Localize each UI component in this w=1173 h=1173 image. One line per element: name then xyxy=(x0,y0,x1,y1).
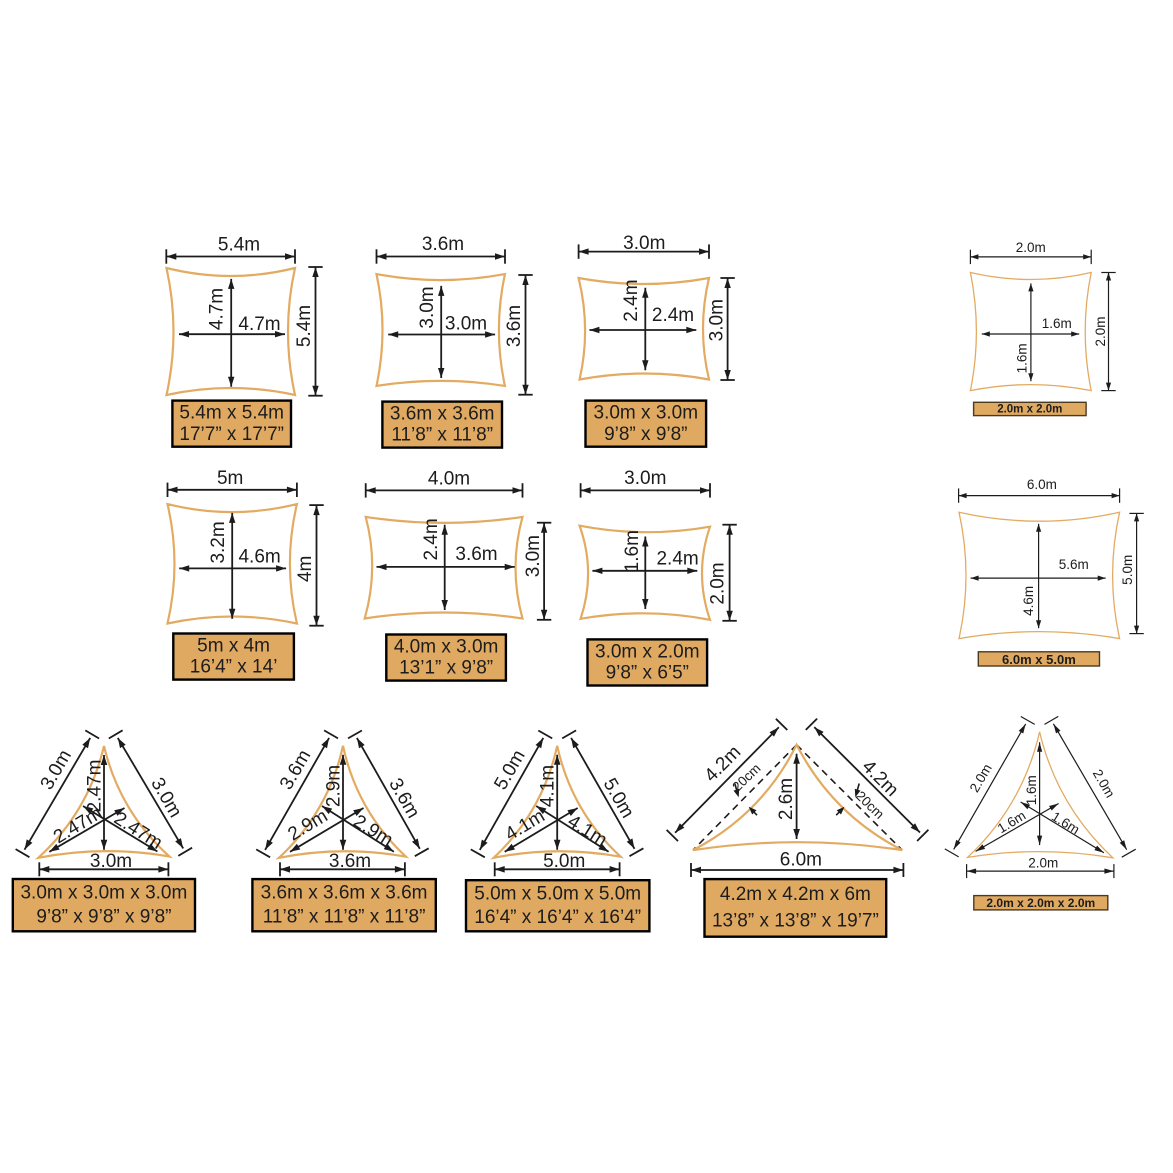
svg-text:3.0m x 2.0m: 3.0m x 2.0m xyxy=(595,641,700,662)
svg-text:3.0m: 3.0m xyxy=(417,286,438,328)
svg-text:3.0m: 3.0m xyxy=(445,314,487,335)
svg-text:5.6m: 5.6m xyxy=(1059,557,1089,572)
svg-text:2.0m: 2.0m xyxy=(707,562,728,604)
svg-text:2.0m: 2.0m xyxy=(1016,240,1046,255)
svg-text:2.0m x 2.0m: 2.0m x 2.0m xyxy=(997,403,1062,415)
svg-text:5.0m: 5.0m xyxy=(543,851,585,872)
svg-text:17’7” x 17’7”: 17’7” x 17’7” xyxy=(179,424,284,445)
svg-text:3.0m x 3.0m: 3.0m x 3.0m xyxy=(594,403,699,424)
svg-text:2.4m: 2.4m xyxy=(656,549,698,570)
svg-text:11’8” x 11’8” x 11’8”: 11’8” x 11’8” x 11’8” xyxy=(263,907,426,928)
svg-text:2.4m: 2.4m xyxy=(621,279,642,321)
svg-text:2.0m: 2.0m xyxy=(1028,855,1058,870)
svg-text:2.6m: 2.6m xyxy=(776,778,797,820)
svg-text:13’1” x 9’8”: 13’1” x 9’8” xyxy=(399,658,493,679)
svg-text:4.7m: 4.7m xyxy=(238,314,280,335)
svg-text:4.7m: 4.7m xyxy=(207,288,228,330)
svg-text:11’8” x 11’8”: 11’8” x 11’8” xyxy=(391,425,493,446)
svg-text:4.6m: 4.6m xyxy=(238,547,280,568)
svg-text:3.6m: 3.6m xyxy=(422,234,464,255)
svg-text:2.0m x 2.0m x 2.0m: 2.0m x 2.0m x 2.0m xyxy=(986,896,1095,910)
svg-text:3.0m: 3.0m xyxy=(623,233,665,254)
svg-text:5.4m: 5.4m xyxy=(294,305,315,347)
svg-text:1.6m: 1.6m xyxy=(1015,343,1030,373)
svg-text:5.0m: 5.0m xyxy=(1120,555,1135,585)
svg-text:9’8” x 9’8” x 9’8”: 9’8” x 9’8” x 9’8” xyxy=(36,907,171,928)
svg-text:4.0m: 4.0m xyxy=(428,468,470,489)
svg-text:3.6m: 3.6m xyxy=(329,851,371,872)
svg-text:4.1m: 4.1m xyxy=(538,765,559,807)
svg-text:5.0m x 5.0m x 5.0m: 5.0m x 5.0m x 5.0m xyxy=(474,884,641,905)
svg-text:5m x 4m: 5m x 4m xyxy=(197,635,270,656)
svg-text:4m: 4m xyxy=(295,556,316,582)
svg-text:3.6m: 3.6m xyxy=(504,305,525,347)
svg-text:6.0m x 5.0m: 6.0m x 5.0m xyxy=(1002,652,1076,667)
svg-text:6.0m: 6.0m xyxy=(780,850,822,871)
svg-text:4.6m: 4.6m xyxy=(1021,586,1036,616)
svg-text:3.0m: 3.0m xyxy=(523,535,544,577)
svg-text:4.0m x 3.0m: 4.0m x 3.0m xyxy=(394,636,499,657)
svg-text:3.0m: 3.0m xyxy=(706,299,727,341)
svg-text:13’8” x 13’8” x 19’7”: 13’8” x 13’8” x 19’7” xyxy=(712,911,879,932)
svg-text:2.4m: 2.4m xyxy=(652,305,694,326)
svg-text:1.6m: 1.6m xyxy=(1024,775,1039,805)
svg-text:3.6m x 3.6m x 3.6m: 3.6m x 3.6m x 3.6m xyxy=(261,883,428,904)
svg-text:9’8” x 6’5”: 9’8” x 6’5” xyxy=(606,663,689,684)
svg-text:16’4” x 16’4” x 16’4”: 16’4” x 16’4” x 16’4” xyxy=(474,907,641,928)
svg-text:2.0m: 2.0m xyxy=(1093,316,1108,346)
svg-text:3.6m: 3.6m xyxy=(455,544,497,565)
svg-text:2.9m: 2.9m xyxy=(324,765,345,807)
svg-text:3.6m x 3.6m: 3.6m x 3.6m xyxy=(390,404,495,425)
svg-text:3.0m x 3.0m x 3.0m: 3.0m x 3.0m x 3.0m xyxy=(20,883,187,904)
svg-text:1.6m: 1.6m xyxy=(1042,316,1072,331)
svg-text:5m: 5m xyxy=(217,468,243,489)
svg-text:3.0m: 3.0m xyxy=(90,851,132,872)
svg-text:9’8” x 9’8”: 9’8” x 9’8” xyxy=(604,424,687,445)
svg-text:4.2m x 4.2m x 6m: 4.2m x 4.2m x 6m xyxy=(720,884,871,905)
svg-text:6.0m: 6.0m xyxy=(1027,477,1057,492)
svg-text:5.4m x 5.4m: 5.4m x 5.4m xyxy=(179,403,284,424)
svg-text:16’4” x 14’: 16’4” x 14’ xyxy=(190,657,278,678)
svg-text:3.0m: 3.0m xyxy=(624,468,666,489)
svg-text:3.2m: 3.2m xyxy=(208,521,229,563)
svg-text:2.4m: 2.4m xyxy=(421,518,442,560)
svg-text:1.6m: 1.6m xyxy=(622,530,643,572)
svg-text:5.4m: 5.4m xyxy=(218,235,260,256)
